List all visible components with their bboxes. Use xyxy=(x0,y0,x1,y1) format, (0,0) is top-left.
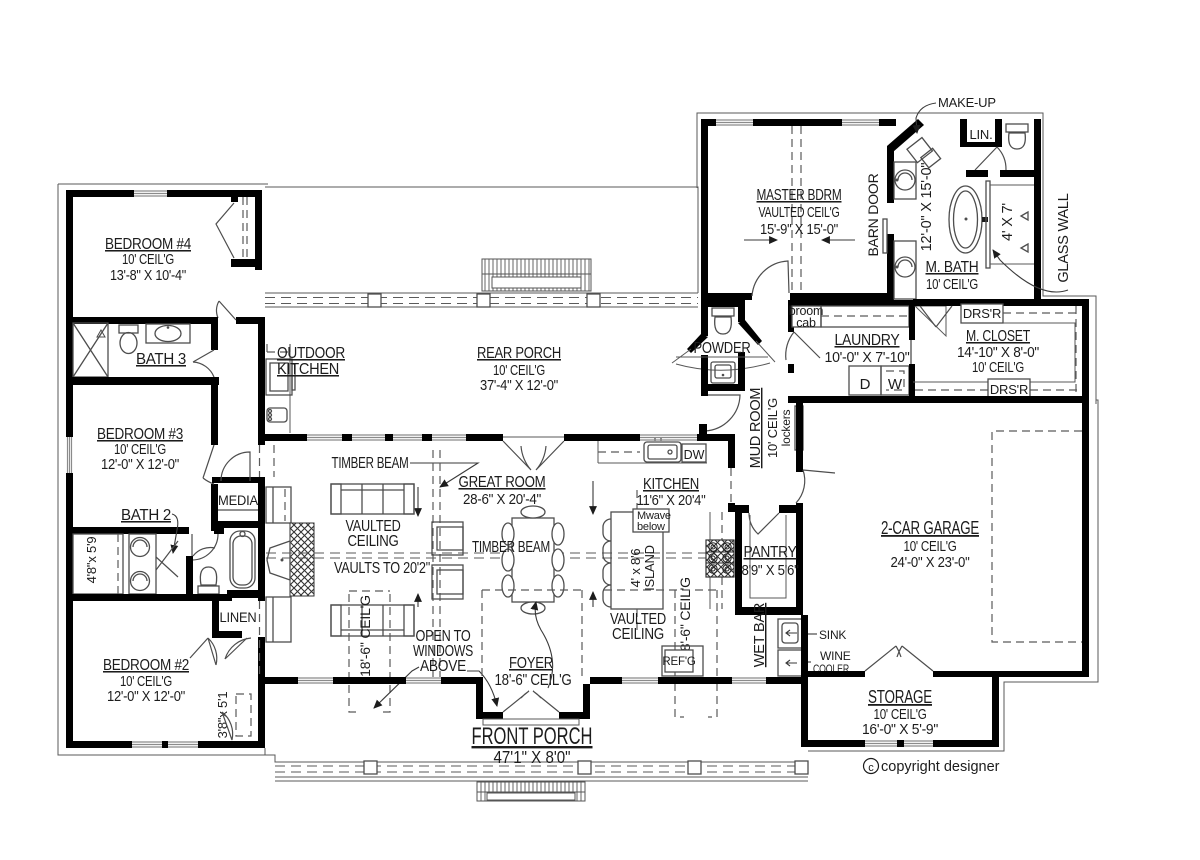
svg-text:M. CLOSET: M. CLOSET xyxy=(966,328,1031,345)
svg-text:4'8"x 5'9: 4'8"x 5'9 xyxy=(84,537,99,584)
svg-text:BATH 3: BATH 3 xyxy=(136,351,186,368)
svg-text:GREAT ROOM: GREAT ROOM xyxy=(459,474,546,491)
svg-text:TIMBER BEAM: TIMBER BEAM xyxy=(332,455,409,472)
svg-text:VAULTED CEIL'G: VAULTED CEIL'G xyxy=(759,205,840,221)
svg-text:SINK: SINK xyxy=(819,628,846,642)
svg-text:37'-4" X 12'-0": 37'-4" X 12'-0" xyxy=(480,378,558,394)
svg-text:10'-0" X 7'-10": 10'-0" X 7'-10" xyxy=(825,350,910,366)
svg-text:VAULTS TO 20'2": VAULTS TO 20'2" xyxy=(334,560,430,577)
svg-text:PANTRY: PANTRY xyxy=(744,544,797,561)
svg-text:18'-6" CEIL'G: 18'-6" CEIL'G xyxy=(357,595,373,677)
svg-text:MEDIA: MEDIA xyxy=(218,492,259,508)
svg-text:KITCHEN: KITCHEN xyxy=(643,476,699,493)
svg-text:cab: cab xyxy=(796,316,816,330)
svg-text:DRS'R: DRS'R xyxy=(963,306,1001,321)
svg-text:BARN DOOR: BARN DOOR xyxy=(865,173,881,256)
svg-text:POWDER: POWDER xyxy=(694,340,751,357)
svg-text:10' CEIL'G: 10' CEIL'G xyxy=(972,360,1024,376)
svg-text:lockers: lockers xyxy=(779,410,793,447)
svg-text:11'6" X 20'4": 11'6" X 20'4" xyxy=(637,493,706,509)
svg-text:15'-9" X 15'-0": 15'-9" X 15'-0" xyxy=(760,222,838,238)
svg-text:10' CEIL'G: 10' CEIL'G xyxy=(926,277,978,293)
svg-text:MASTER BDRM: MASTER BDRM xyxy=(757,187,842,204)
svg-text:c: c xyxy=(868,762,874,774)
svg-text:47'1" X 8'0": 47'1" X 8'0" xyxy=(494,747,571,767)
svg-text:ABOVE: ABOVE xyxy=(420,658,466,675)
svg-text:LIN.: LIN. xyxy=(969,127,992,142)
svg-text:8'9" X 5'6": 8'9" X 5'6" xyxy=(742,563,799,579)
svg-text:13'-8" X 10'-4": 13'-8" X 10'-4" xyxy=(110,268,186,284)
svg-text:below: below xyxy=(637,521,665,533)
svg-text:2-CAR GARAGE: 2-CAR GARAGE xyxy=(881,518,979,538)
svg-text:18'-6" CEIL'G: 18'-6" CEIL'G xyxy=(495,672,572,689)
svg-text:WET BAR: WET BAR xyxy=(752,603,768,667)
svg-text:12'-0" X 15'-0": 12'-0" X 15'-0" xyxy=(919,163,935,252)
svg-text:BATH 2: BATH 2 xyxy=(121,507,171,524)
svg-text:REF'G: REF'G xyxy=(662,656,695,668)
svg-text:KITCHEN: KITCHEN xyxy=(277,361,339,378)
svg-text:MAKE-UP: MAKE-UP xyxy=(938,95,996,110)
svg-text:BEDROOM #2: BEDROOM #2 xyxy=(103,657,189,674)
svg-text:DW: DW xyxy=(684,448,705,462)
svg-text:LINEN: LINEN xyxy=(220,609,257,625)
svg-text:10' CEIL'G: 10' CEIL'G xyxy=(874,707,927,723)
svg-text:OUTDOOR: OUTDOOR xyxy=(277,345,345,362)
svg-text:24'-0" X 23'-0": 24'-0" X 23'-0" xyxy=(891,555,970,571)
svg-text:10' CEIL'G: 10' CEIL'G xyxy=(904,539,957,555)
svg-text:ISLAND: ISLAND xyxy=(642,545,657,591)
svg-text:10' CEIL'G: 10' CEIL'G xyxy=(122,252,174,268)
svg-text:FOYER: FOYER xyxy=(509,655,553,672)
svg-text:STORAGE: STORAGE xyxy=(868,687,932,707)
svg-text:12'-0" X 12'-0": 12'-0" X 12'-0" xyxy=(101,457,179,473)
svg-text:BEDROOM #3: BEDROOM #3 xyxy=(97,426,183,443)
svg-text:BEDROOM #4: BEDROOM #4 xyxy=(105,236,192,253)
svg-text:10' CEIL'G: 10' CEIL'G xyxy=(120,674,172,690)
svg-text:MUD ROOM: MUD ROOM xyxy=(748,388,764,469)
svg-text:4' x 8'6: 4' x 8'6 xyxy=(628,549,643,588)
svg-text:16'-0" X 5'-9": 16'-0" X 5'-9" xyxy=(862,722,938,738)
svg-text:CEILING: CEILING xyxy=(348,533,399,550)
svg-text:14'-10" X 8'-0": 14'-10" X 8'-0" xyxy=(957,345,1039,361)
svg-text:10' CEIL'G: 10' CEIL'G xyxy=(765,398,780,458)
svg-text:WINE: WINE xyxy=(820,649,851,663)
svg-text:DRS'R: DRS'R xyxy=(990,382,1028,397)
svg-text:10' CEIL'G: 10' CEIL'G xyxy=(493,363,545,379)
svg-text:12'-0" X 12'-0": 12'-0" X 12'-0" xyxy=(107,689,185,705)
svg-text:LAUNDRY: LAUNDRY xyxy=(835,332,900,349)
svg-text:TIMBER BEAM: TIMBER BEAM xyxy=(472,539,550,556)
svg-text:M. BATH: M. BATH xyxy=(926,259,979,276)
svg-text:10' CEIL'G: 10' CEIL'G xyxy=(114,442,166,458)
svg-text:FRONT PORCH: FRONT PORCH xyxy=(472,723,593,750)
svg-text:REAR PORCH: REAR PORCH xyxy=(477,345,561,362)
svg-text:CEILING: CEILING xyxy=(612,626,664,643)
svg-text:4' X 7': 4' X 7' xyxy=(1000,203,1016,241)
svg-text:copyright designer: copyright designer xyxy=(881,759,1000,775)
svg-text:GLASS WALL: GLASS WALL xyxy=(1056,193,1072,282)
svg-text:D: D xyxy=(860,376,871,393)
